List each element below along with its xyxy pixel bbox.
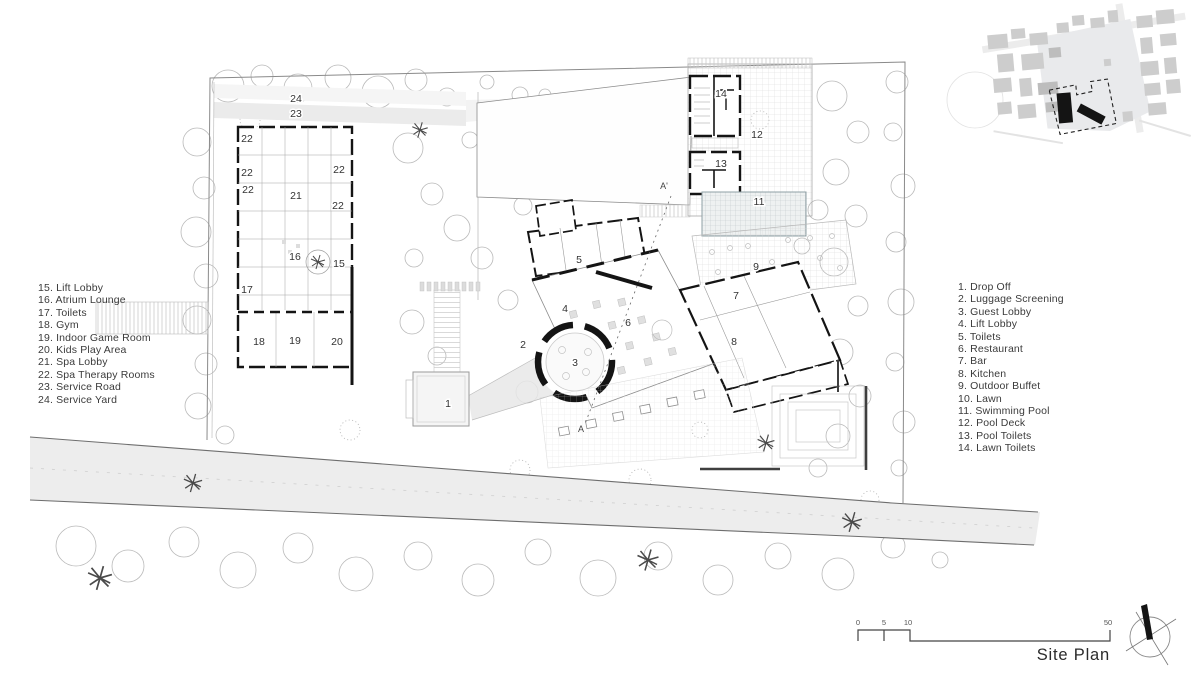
- lawn-toilets-building: [690, 76, 740, 136]
- plan-label: 22: [333, 164, 345, 176]
- legend-item: 3. Guest Lobby: [958, 306, 1064, 318]
- legend-item: 9. Outdoor Buffet: [958, 380, 1064, 392]
- north-arrow: [1126, 604, 1176, 665]
- plan-label: 6: [625, 317, 631, 329]
- legend-right: 1. Drop Off 2. Luggage Screening 3. Gues…: [958, 281, 1064, 455]
- plan-label: 14: [715, 88, 727, 100]
- legend-item: 11. Swimming Pool: [958, 405, 1064, 417]
- plan-label: 24: [290, 93, 302, 105]
- scale-tick: 5: [882, 618, 886, 627]
- legend-item: 8. Kitchen: [958, 368, 1064, 380]
- plan-label: 22: [242, 184, 254, 196]
- plan-label: 2: [520, 339, 526, 351]
- legend-item: 12. Pool Deck: [958, 417, 1064, 429]
- plan-label: 22: [332, 200, 344, 212]
- site-plan-sheet: A' A 1 2 3 4 5 6 7 8 9 11 12 13 14 15 16…: [0, 0, 1200, 675]
- section-marker-top: A': [660, 181, 668, 191]
- plan-label: 18: [253, 336, 265, 348]
- legend-item: 6. Restaurant: [958, 343, 1064, 355]
- plan-label: 17: [241, 284, 253, 296]
- legend-item: 1. Drop Off: [958, 281, 1064, 293]
- plan-label: 4: [562, 303, 568, 315]
- legend-item: 19. Indoor Game Room: [38, 332, 155, 344]
- plan-label: 9: [753, 261, 759, 273]
- legend-item: 17. Toilets: [38, 307, 155, 319]
- plan-label: 22: [241, 167, 253, 179]
- legend-item: 10. Lawn: [958, 393, 1064, 405]
- location-inset-map: [979, 0, 1195, 153]
- plan-label: 21: [290, 190, 302, 202]
- scale-tick: 50: [1104, 618, 1112, 627]
- plan-label: 22: [241, 133, 253, 145]
- plan-label: 1: [445, 398, 451, 410]
- plan-label: 11: [754, 196, 765, 208]
- main-road: [30, 437, 1040, 545]
- legend-item: 13. Pool Toilets: [958, 430, 1064, 442]
- plan-label: 16: [289, 251, 301, 263]
- legend-item: 16. Atrium Lounge: [38, 294, 155, 306]
- legend-item: 21. Spa Lobby: [38, 356, 155, 368]
- legend-item: 14. Lawn Toilets: [958, 442, 1064, 454]
- legend-item: 4. Lift Lobby: [958, 318, 1064, 330]
- legend-item: 5. Toilets: [958, 331, 1064, 343]
- section-marker-bottom: A: [578, 424, 584, 434]
- plan-label: 5: [576, 254, 582, 266]
- legend-item: 18. Gym: [38, 319, 155, 331]
- legend-item: 2. Luggage Screening: [958, 293, 1064, 305]
- plan-label: 15: [333, 258, 345, 270]
- legend-item: 7. Bar: [958, 355, 1064, 367]
- plan-label: 3: [572, 357, 578, 369]
- legend-item: 24. Service Yard: [38, 394, 155, 406]
- legend-left: 15. Lift Lobby 16. Atrium Lounge 17. Toi…: [38, 282, 155, 406]
- legend-item: 20. Kids Play Area: [38, 344, 155, 356]
- plan-label: 20: [331, 336, 343, 348]
- plan-label: 12: [751, 129, 763, 141]
- plan-label: 23: [290, 108, 302, 120]
- drop-off: [406, 372, 469, 426]
- plan-label: 19: [289, 335, 301, 347]
- page-title: Site Plan: [1037, 646, 1110, 665]
- scale-tick: 10: [904, 618, 912, 627]
- legend-item: 15. Lift Lobby: [38, 282, 155, 294]
- scale-tick: 0: [856, 618, 860, 627]
- legend-item: 22. Spa Therapy Rooms: [38, 369, 155, 381]
- lawn: [477, 77, 692, 217]
- scale-bar: 0 5 10 50: [856, 618, 1112, 641]
- plan-label: 13: [715, 158, 727, 170]
- legend-item: 23. Service Road: [38, 381, 155, 393]
- plan-label: 7: [733, 290, 739, 302]
- plan-label: 8: [731, 336, 737, 348]
